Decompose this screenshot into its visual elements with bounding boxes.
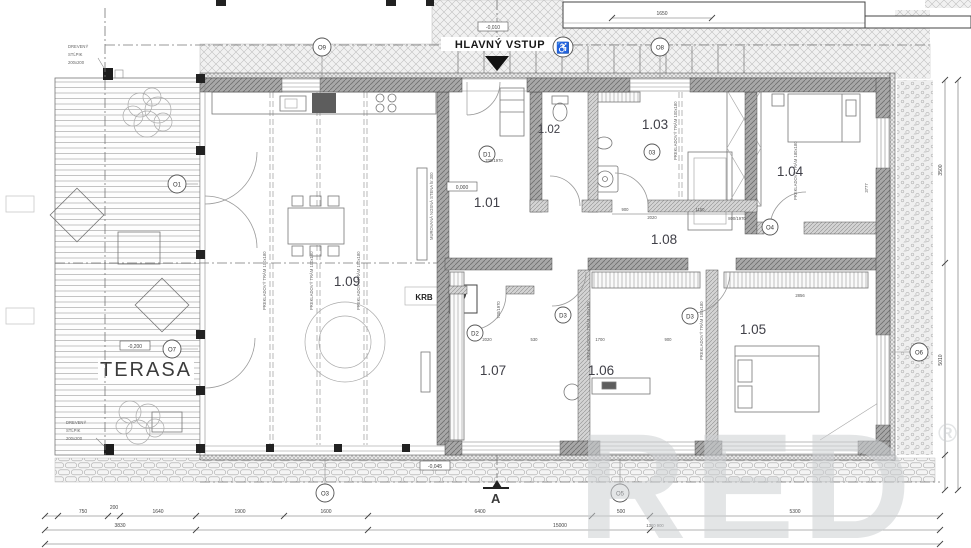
floor-plan-page: TERASA DREVENÝ STĹPIK 200x200 DREVENÝ ST…	[0, 0, 971, 548]
door-dim-3: 700/1970	[496, 301, 501, 319]
elevation-minus010: -0,010	[486, 25, 500, 31]
door-dim-2: 800/1970	[728, 216, 746, 221]
entrance-label: HLAVNÝ VSTUP	[455, 38, 545, 51]
dim-2020b: 2020	[482, 337, 492, 342]
right-gravel-strip	[897, 80, 933, 455]
section-mark: A	[483, 480, 509, 506]
dim-b1-5: 6400	[474, 509, 485, 515]
dim-530: 530	[531, 337, 539, 342]
wood-post-note-6: 200x200	[66, 436, 83, 441]
section-label: A	[491, 491, 501, 506]
wood-post-note-4: DREVENÝ	[66, 420, 86, 425]
roof-columns	[216, 0, 434, 6]
dim-right-1: 5010	[938, 354, 944, 365]
watermark-registered-icon: ®	[938, 418, 957, 448]
wood-post-top: DREVENÝ STĹPIK 200x200	[68, 44, 123, 80]
fridge	[312, 93, 336, 113]
wood-post-note-1: DREVENÝ	[68, 44, 88, 49]
marker-o6: O6	[915, 351, 924, 357]
marker-03: 03	[649, 151, 656, 157]
door-dim-1: 700/1970	[485, 158, 503, 163]
marker-o8: O8	[656, 46, 665, 52]
room-label-1-05: 1.05	[740, 322, 766, 337]
room-label-1-06: 1.06	[588, 363, 614, 378]
marker-o1: O1	[173, 183, 182, 189]
dim-b1-3: 1900	[234, 509, 245, 515]
dim-2856: 2856	[795, 293, 805, 298]
dim-b2-1: 15000	[553, 523, 567, 529]
room-label-1-01: 1.01	[474, 195, 500, 210]
beam-note-1: PREKLADOVÝ TRÁM 100x180	[262, 251, 267, 310]
neighbor-outline	[6, 196, 34, 324]
marker-d3b: D3	[686, 315, 694, 321]
dim-900: 900	[622, 207, 630, 212]
watermark: RED ®	[578, 402, 957, 548]
room-label-1-03: 1.03	[642, 117, 668, 132]
room-label-1-08: 1.08	[651, 232, 677, 247]
beam-note-2: PREKLADOVÝ TRÁM 100x180	[309, 251, 314, 310]
elevation-minus200: -0,200	[128, 344, 142, 350]
beam-100-note-b: PREKLADOVÝ TRÁM 100x180	[586, 301, 591, 360]
room-label-1-09: 1.09	[334, 274, 360, 289]
elevation-minus045: -0,045	[428, 464, 442, 470]
beam-note-4: PREKLADOVÝ TRÁM 100x180	[673, 101, 678, 160]
dim-b1-0: 750	[79, 509, 88, 515]
marker-d2: D2	[471, 332, 479, 338]
dim-3777: 3777	[864, 183, 869, 193]
dim-right-0: 3500	[938, 164, 944, 175]
fireplace-label: KRB	[415, 293, 433, 302]
wood-post-note-3: 200x200	[68, 60, 85, 65]
dim-b1-4: 1600	[320, 509, 331, 515]
terrace-label: TERASA	[100, 359, 192, 381]
floor-plan-drawing: TERASA DREVENÝ STĹPIK 200x200 DREVENÝ ST…	[0, 0, 971, 548]
dim-2020: 2020	[647, 215, 657, 220]
dim-top: 1650	[656, 11, 667, 17]
marker-o7: O7	[168, 348, 177, 354]
dim-1150: 1150	[695, 207, 705, 212]
beam-100-note-a: PREKLADOVÝ TRÁM 100x180	[699, 301, 704, 360]
marker-o9: O9	[318, 46, 327, 52]
room-label-1-04: 1.04	[777, 164, 804, 179]
watermark-text: RED	[578, 402, 919, 548]
room-label-1-07: 1.07	[480, 363, 506, 378]
bearing-wall-note: MUROVANÁ NOSNÁ STENA hr.300	[429, 172, 434, 240]
elevation-zero: 0,000	[456, 185, 469, 191]
accessibility-marker: ♿	[553, 37, 573, 57]
marker-o3: O3	[321, 492, 330, 498]
wheelchair-icon: ♿	[556, 42, 570, 55]
beam-180-note: PREKLADOVÝ TRÁM 180x180	[793, 141, 798, 200]
marker-d3a: D3	[559, 314, 567, 320]
room-label-1-02: 1.02	[538, 124, 560, 136]
dim-b1-1: 200	[110, 505, 119, 511]
dim-b2-0: 3830	[114, 523, 125, 529]
dim-900b: 900	[665, 337, 673, 342]
wood-post-note-2: STĹPIK	[68, 52, 83, 57]
dim-b1-2: 1640	[152, 509, 163, 515]
dim-1700: 1700	[595, 337, 605, 342]
wood-post-note-5: STĹPIK	[66, 428, 81, 433]
marker-o4: O4	[766, 226, 775, 232]
